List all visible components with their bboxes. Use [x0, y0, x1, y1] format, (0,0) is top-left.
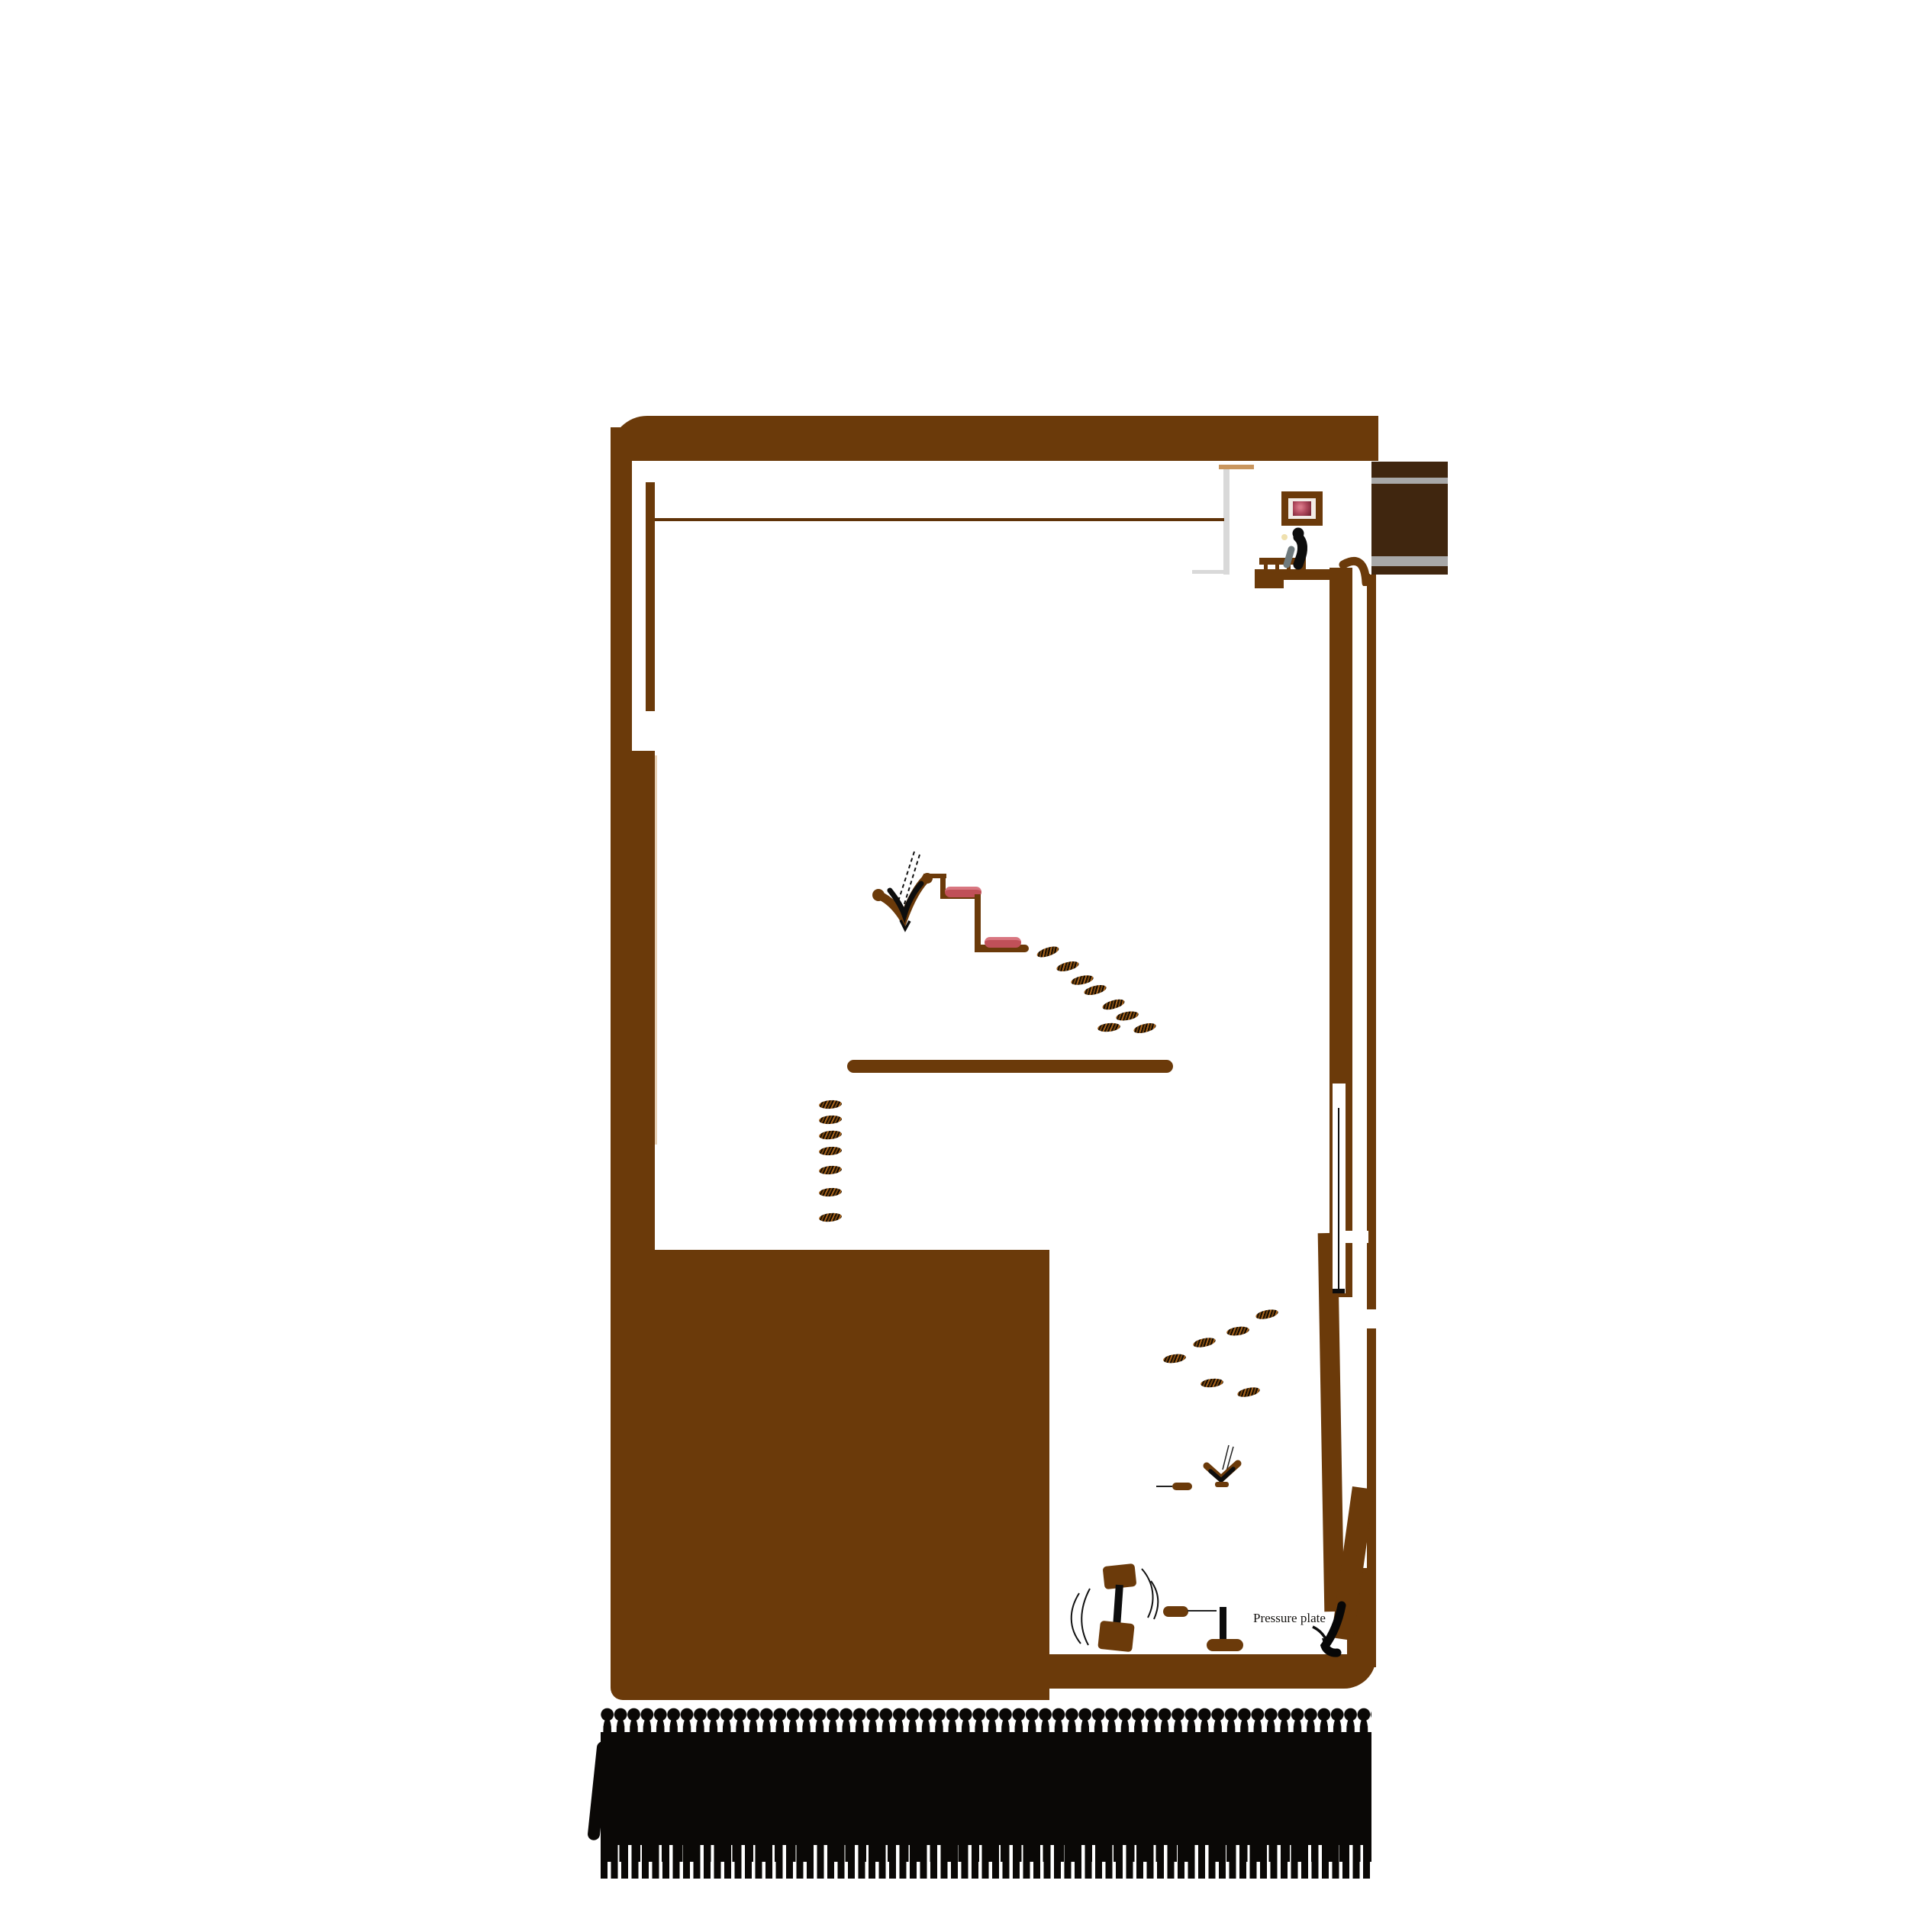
lower-left-block [611, 1250, 1049, 1700]
figure-leg [1287, 549, 1291, 565]
crowd-legs-strands-overlay [601, 1840, 1371, 1862]
footprint [1056, 960, 1080, 974]
wall-gap-notch-1 [1346, 1231, 1368, 1243]
footprint [1192, 1336, 1217, 1349]
lever-bar [1220, 1607, 1226, 1644]
footprint [819, 1115, 843, 1125]
left-wall-inner-rail [646, 482, 655, 711]
top-wall [611, 416, 1378, 461]
picture-frame [1281, 491, 1323, 526]
footprint [1097, 1022, 1121, 1032]
pressure-plate-mark [1325, 1605, 1342, 1653]
picture-image [1293, 501, 1311, 516]
figure-hand-dot [1281, 534, 1288, 540]
left-wall-lower [611, 751, 655, 1259]
footprint [819, 1146, 843, 1156]
landing-figure [1188, 1444, 1252, 1492]
pressure-plate-arrow-and-plate [1307, 1598, 1357, 1663]
footprint [1226, 1325, 1249, 1337]
left-wall-edge-line [655, 755, 657, 1145]
footprint [819, 1165, 843, 1176]
figure-hand-blob [872, 889, 885, 901]
crowd-body-mass [601, 1732, 1371, 1845]
footprint [1036, 945, 1060, 960]
step-riser-2 [975, 894, 981, 949]
footprint [1236, 1386, 1261, 1399]
left-wall-upper [611, 427, 632, 755]
landing-base [1215, 1482, 1229, 1487]
bench-post-1 [1264, 564, 1268, 571]
cushion-2 [985, 937, 1021, 948]
rope-bar [1333, 1289, 1345, 1293]
footprint [819, 1129, 843, 1140]
room-floor-line [1192, 570, 1224, 574]
room-top-line [1219, 465, 1254, 469]
level-map-canvas: Pressure plate [0, 0, 1908, 1932]
shaft-hook [1339, 551, 1374, 586]
figure-body [1298, 537, 1303, 565]
marker-pill-lower [1163, 1606, 1188, 1617]
dumbbell-bottom-weight [1097, 1621, 1135, 1653]
room-left-wall [1223, 467, 1230, 575]
marker-line-upper [1156, 1486, 1172, 1487]
footprint [1115, 1009, 1139, 1022]
hanging-rope [1338, 1108, 1339, 1290]
marker-pill-upper [1172, 1483, 1192, 1490]
jumping-figure [869, 848, 945, 939]
bench-base [1255, 578, 1284, 588]
figure-head-blob [922, 873, 933, 884]
ceiling-wire [655, 518, 1224, 521]
footprint [819, 1187, 843, 1197]
marker-line-lower [1188, 1610, 1217, 1612]
footprint [1070, 974, 1094, 987]
corridor-stripe-bottom [1371, 556, 1448, 566]
footprint [1133, 1022, 1157, 1035]
footprint [1101, 997, 1126, 1012]
footprint [1162, 1353, 1186, 1364]
corridor-stripe-top [1371, 478, 1448, 484]
long-platform [847, 1060, 1173, 1073]
outer-right-wall [1367, 574, 1376, 1579]
footprint [1255, 1308, 1279, 1321]
footprint [1083, 984, 1107, 997]
seated-figure [1278, 526, 1313, 574]
footprint [819, 1212, 843, 1222]
wall-gap-notch-2 [1367, 1309, 1376, 1328]
footprint [819, 1100, 843, 1109]
lever-base [1207, 1639, 1243, 1651]
footprint [1201, 1377, 1224, 1388]
